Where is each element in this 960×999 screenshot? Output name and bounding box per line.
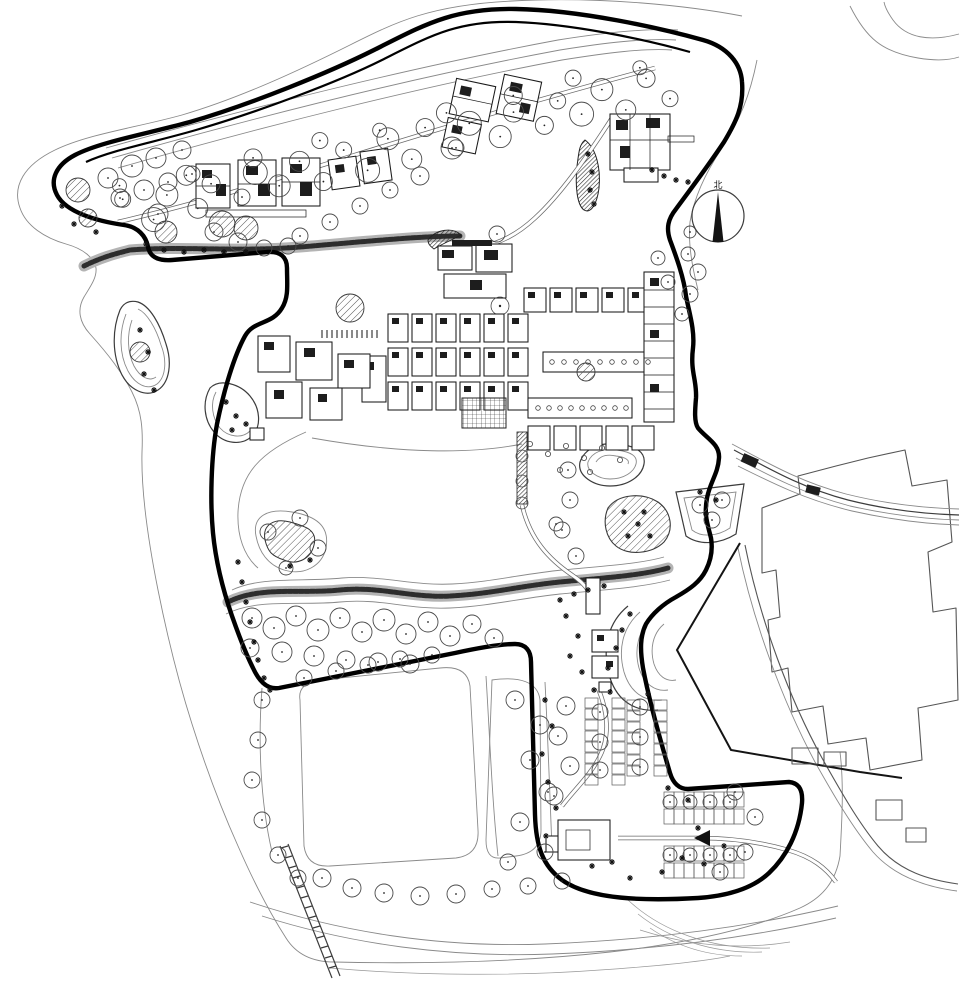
swimming-pool xyxy=(462,398,506,428)
central-complex-east xyxy=(524,272,674,475)
site-plan-page: 北 xyxy=(0,0,960,999)
villa-pair-north xyxy=(328,148,392,190)
central-complex-west xyxy=(362,314,528,509)
field-1-outline xyxy=(300,668,478,866)
vegetation-layer xyxy=(59,61,763,905)
kidney-pond xyxy=(265,521,315,562)
gatehouse xyxy=(592,630,618,692)
clubhouse xyxy=(438,240,512,315)
stream-bridge xyxy=(586,578,600,614)
context-layer xyxy=(18,0,959,978)
north-needle-icon xyxy=(713,192,724,242)
site-plan-drawing: 北 xyxy=(0,0,960,999)
context-parcel-line xyxy=(677,543,902,778)
villa-cluster-mid-left xyxy=(250,330,377,440)
south-building xyxy=(546,820,610,860)
north-arrow-label: 北 xyxy=(713,180,722,191)
existing-road-band xyxy=(732,444,959,525)
villa-cluster-top-left xyxy=(196,158,320,217)
adjacent-building-outline xyxy=(762,450,958,770)
site-entry-arrow-icon xyxy=(694,830,710,846)
promenade-deck xyxy=(517,432,527,504)
lobe-road xyxy=(562,688,607,806)
